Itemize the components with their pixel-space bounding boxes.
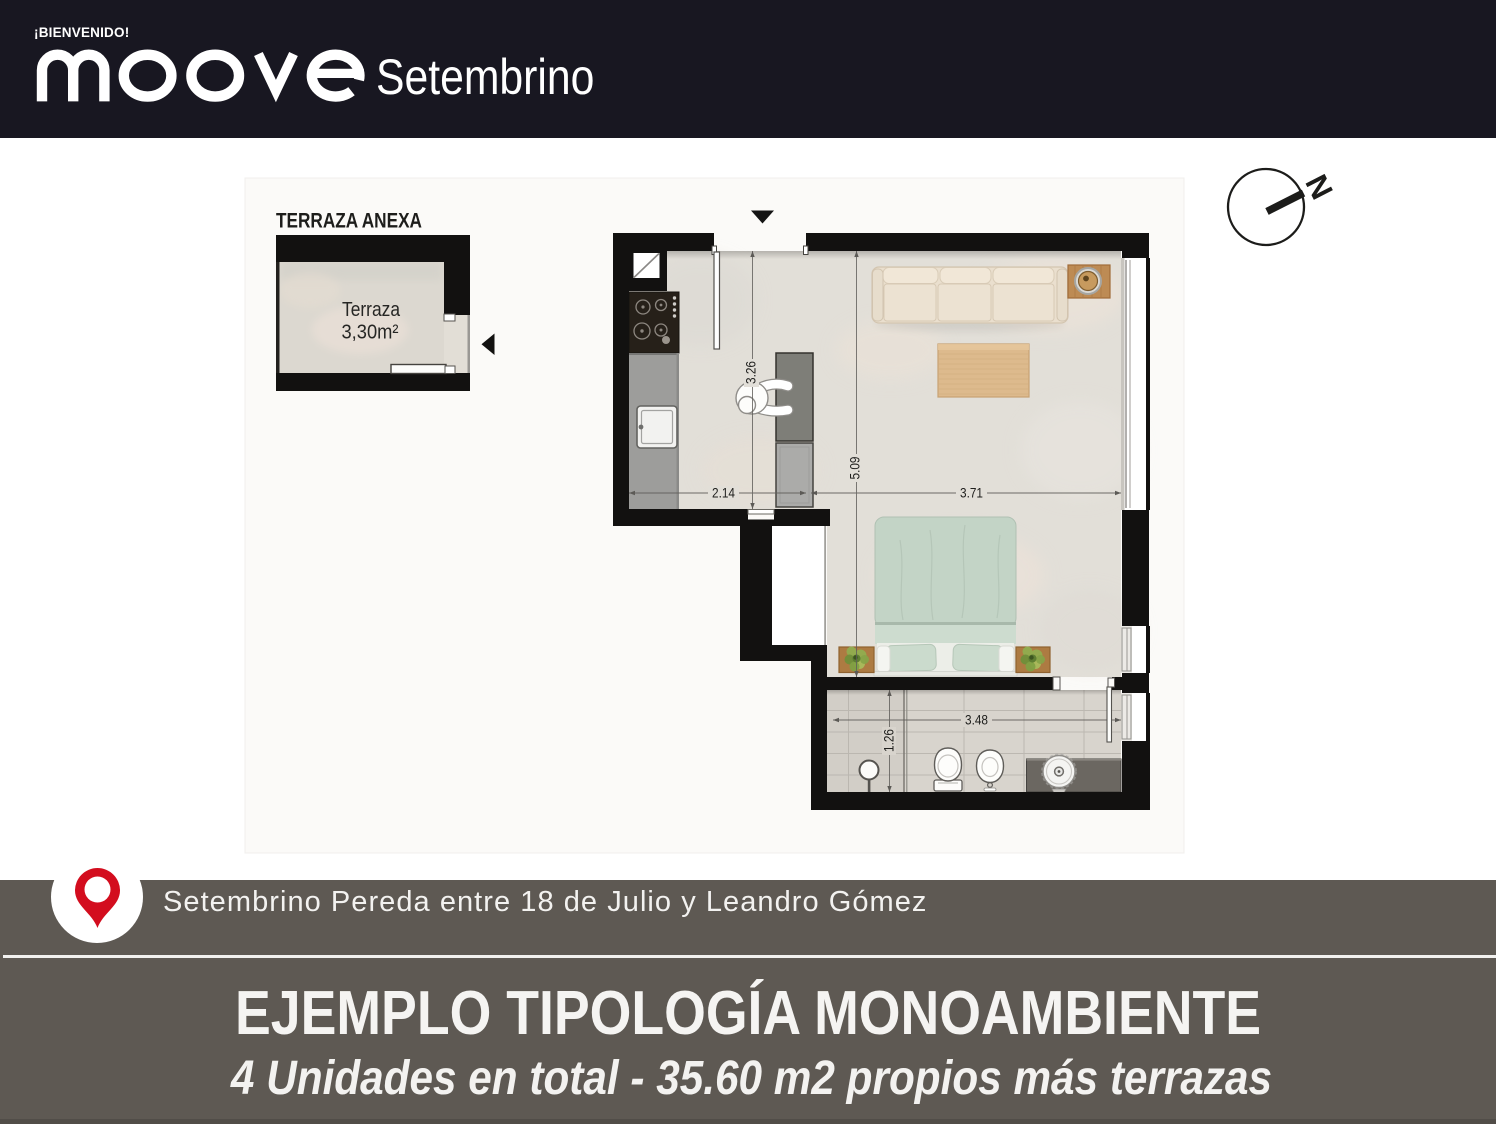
svg-text:N: N [1298,169,1339,205]
svg-text:TERRAZA ANEXA: TERRAZA ANEXA [276,209,422,233]
svg-text:3,30m²: 3,30m² [342,321,399,344]
svg-text:3.48: 3.48 [965,713,988,728]
svg-text:3.71: 3.71 [960,486,983,501]
svg-text:3.26: 3.26 [744,361,759,384]
svg-text:1.26: 1.26 [882,729,897,752]
svg-text:2.14: 2.14 [712,486,735,501]
svg-text:Terraza: Terraza [342,298,401,321]
svg-text:5.09: 5.09 [848,457,863,480]
